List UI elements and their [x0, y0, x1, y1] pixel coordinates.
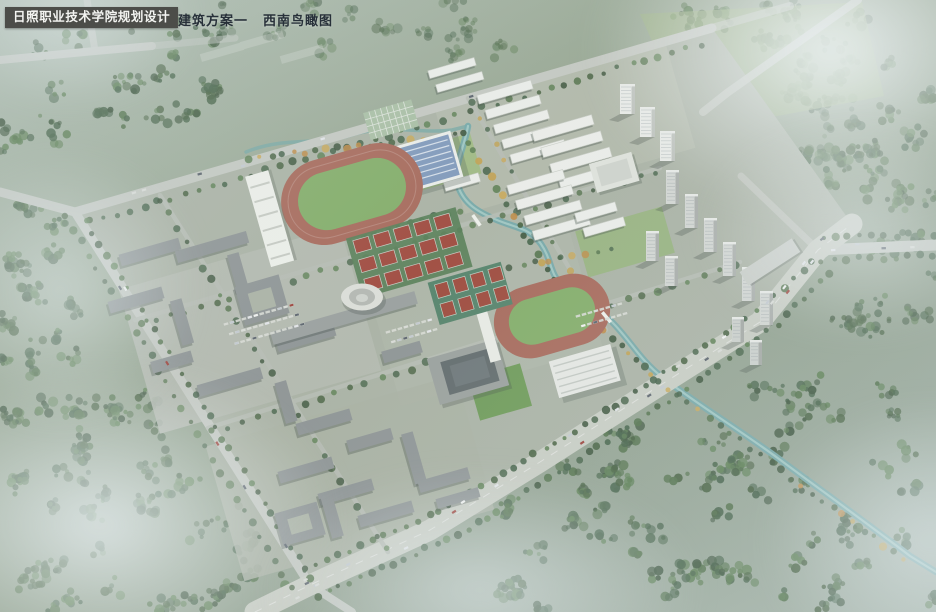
campus-aerial-scene	[0, 0, 936, 612]
rendering-canvas: 日照职业技术学院规划设计 建筑方案一西南鸟瞰图	[0, 0, 936, 612]
